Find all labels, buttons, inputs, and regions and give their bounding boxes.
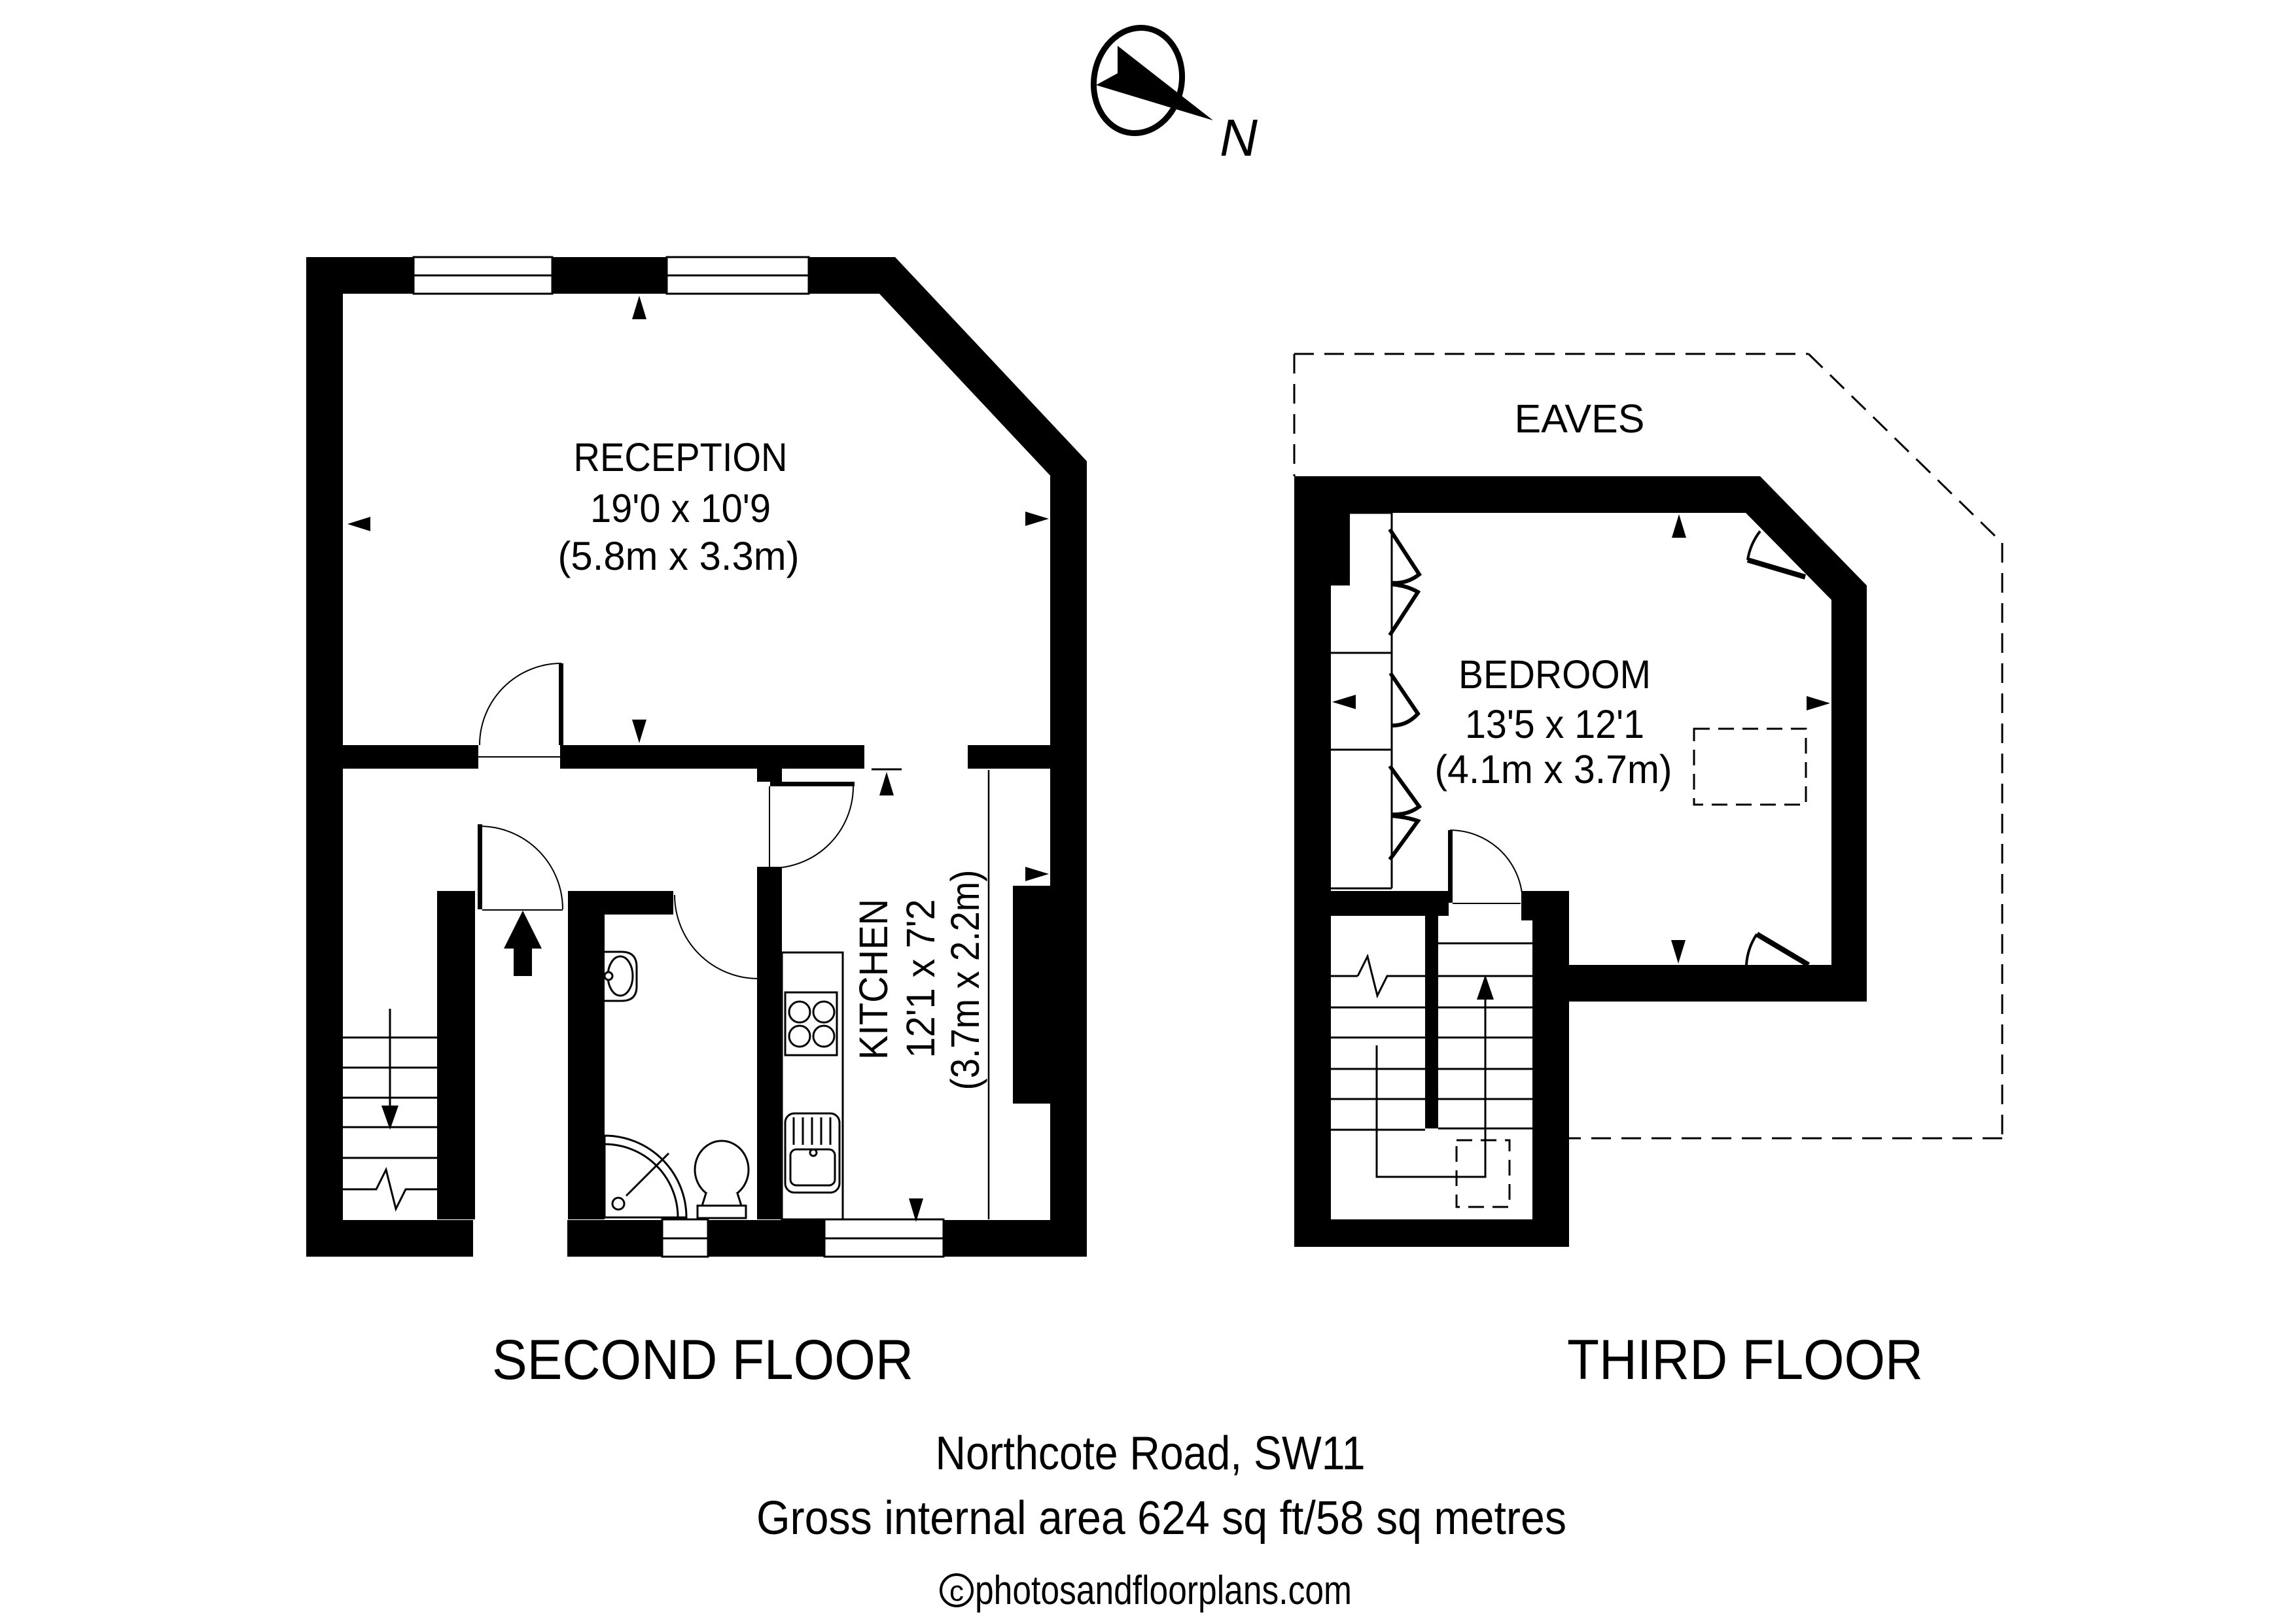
svg-text:photosandfloorplans.com: photosandfloorplans.com bbox=[975, 1568, 1352, 1613]
svg-text:(4.1m x 3.7m): (4.1m x 3.7m) bbox=[1435, 747, 1672, 792]
svg-text:13'5 x 12'1: 13'5 x 12'1 bbox=[1465, 702, 1644, 746]
svg-text:RECEPTION: RECEPTION bbox=[574, 435, 788, 480]
svg-text:Gross internal area 624 sq ft/: Gross internal area 624 sq ft/58 sq metr… bbox=[756, 1492, 1566, 1544]
svg-text:19'0 x 10'9: 19'0 x 10'9 bbox=[590, 486, 771, 531]
svg-text:THIRD FLOOR: THIRD FLOOR bbox=[1567, 1329, 1923, 1391]
svg-text:(3.7m x 2.2m): (3.7m x 2.2m) bbox=[943, 870, 987, 1091]
svg-text:12'1 x 7'2: 12'1 x 7'2 bbox=[898, 899, 943, 1058]
svg-text:c: c bbox=[949, 1575, 964, 1607]
svg-text:EAVES: EAVES bbox=[1515, 396, 1645, 441]
svg-text:KITCHEN: KITCHEN bbox=[851, 899, 896, 1060]
svg-text:Northcote Road, SW11: Northcote Road, SW11 bbox=[936, 1427, 1366, 1480]
svg-text:(5.8m x 3.3m): (5.8m x 3.3m) bbox=[558, 534, 800, 578]
svg-text:SECOND FLOOR: SECOND FLOOR bbox=[492, 1329, 913, 1391]
svg-text:BEDROOM: BEDROOM bbox=[1458, 652, 1651, 697]
svg-text:N: N bbox=[1220, 109, 1258, 167]
